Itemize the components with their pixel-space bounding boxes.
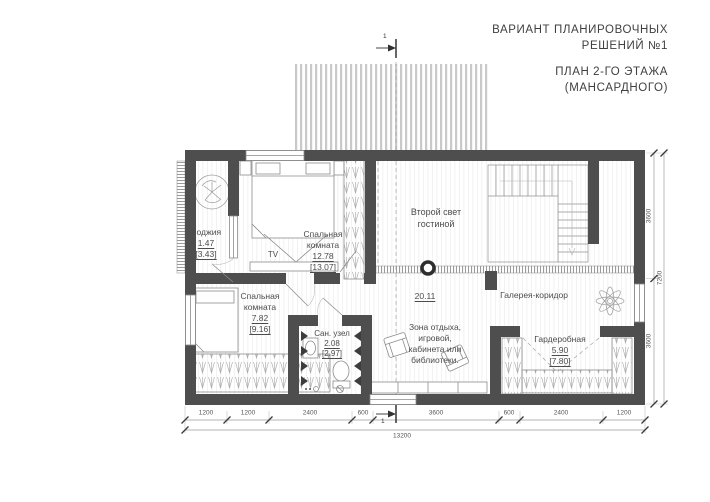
- bed-bedroom1: [240, 160, 344, 238]
- room-label-wardrobe: Гардеробная 5.90 [7.80]: [521, 334, 599, 367]
- dim-right-2: 3600: [646, 334, 653, 348]
- roof-hatch: [293, 64, 490, 150]
- dim-bottom-3: 2400: [303, 410, 317, 417]
- dim-bottom-4: 600: [358, 410, 369, 417]
- floor-plan-canvas: ВАРИАНТ ПЛАНИРОВОЧНЫХ РЕШЕНИЙ №1 ПЛАН 2-…: [0, 0, 710, 502]
- dim-bottom-2: 1200: [241, 410, 255, 417]
- window-bottom: [370, 395, 416, 405]
- axis-label-top: 1: [383, 33, 387, 40]
- lounge-cabinet: [368, 382, 487, 393]
- tv-label: TV: [262, 250, 284, 260]
- drawing-title-plan: ПЛАН 2-ГО ЭТАЖА (МАНСАРДНОГО): [555, 64, 668, 96]
- dim-right-total: 7200: [657, 271, 664, 285]
- toilet: [333, 361, 350, 388]
- room-label-second-light: Второй свет гостиной: [397, 207, 475, 230]
- gallery-area-label: 20.11: [404, 291, 446, 302]
- title-line: ВАРИАНТ ПЛАНИРОВОЧНЫХ: [492, 22, 668, 38]
- dim-bottom-1: 1200: [199, 410, 213, 417]
- room-label-bedroom1: Спальная комната 12.78 [13.07]: [293, 229, 353, 273]
- room-label-bathroom: Сан. узел 2.08 [2.97]: [305, 329, 359, 359]
- title-line: ПЛАН 2-ГО ЭТАЖА: [555, 64, 668, 80]
- title-line: РЕШЕНИЙ №1: [492, 38, 668, 54]
- title-line: (МАНСАРДНОГО): [555, 80, 668, 96]
- room-label-loggia: Лоджия 1.47 [3.43]: [184, 227, 228, 260]
- dim-bottom-5: 3600: [429, 410, 443, 417]
- wardrobe-bedroom2: [190, 354, 330, 392]
- dim-bottom-total: 13200: [393, 433, 411, 440]
- window-top: [246, 151, 304, 161]
- drawing-title-variant: ВАРИАНТ ПЛАНИРОВОЧНЫХ РЕШЕНИЙ №1: [492, 22, 668, 54]
- dim-bottom-6: 600: [504, 410, 515, 417]
- window-left: [186, 295, 196, 345]
- window-right: [635, 284, 645, 322]
- dim-right-1: 3600: [646, 209, 653, 223]
- column: [422, 262, 434, 274]
- room-label-bedroom2: Спальная комната 7.82 [9.16]: [230, 291, 290, 335]
- loggia-glazing: [230, 216, 238, 258]
- room-label-lounge: Зона отдыха, игровой, кабинета или библи…: [392, 322, 478, 366]
- dim-bottom-7: 2400: [554, 410, 568, 417]
- dim-bottom-8: 1200: [617, 410, 631, 417]
- axis-label-bottom: 1: [381, 418, 385, 425]
- room-label-gallery: Галерея-коридор: [487, 290, 581, 301]
